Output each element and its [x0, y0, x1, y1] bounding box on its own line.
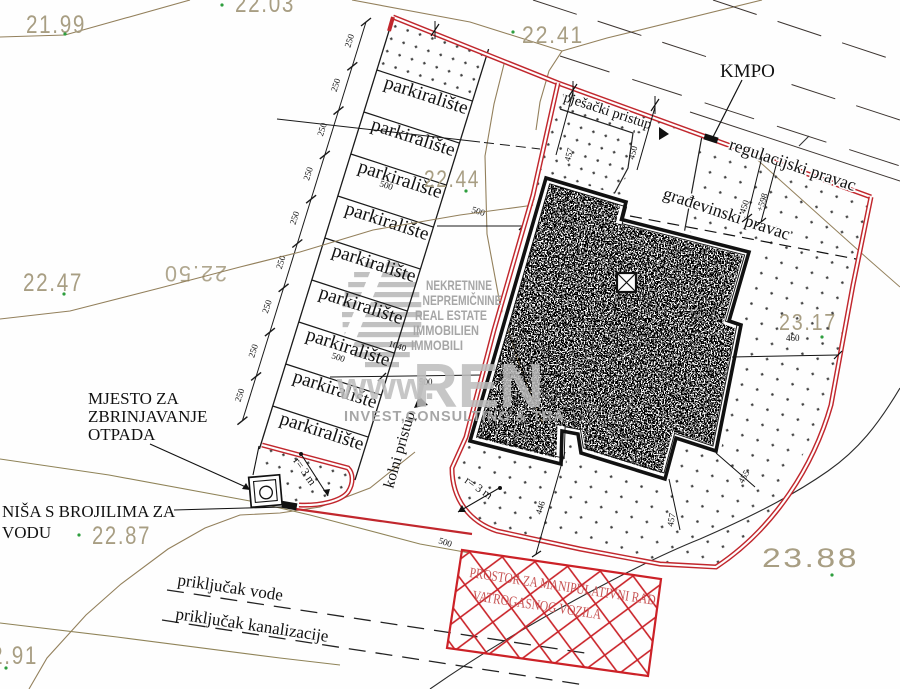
- svg-text:NEPREMIČNINE: NEPREMIČNINE: [423, 291, 502, 308]
- svg-text:21.99: 21.99: [26, 11, 86, 39]
- svg-text:INVEST,CONSULTING & TRA: INVEST,CONSULTING & TRA: [344, 409, 565, 425]
- svg-text:22.03: 22.03: [235, 0, 295, 18]
- svg-text:22.44: 22.44: [424, 166, 480, 193]
- svg-text:22.91: 22.91: [0, 642, 38, 670]
- svg-text:MJESTO ZA: MJESTO ZA: [88, 389, 180, 408]
- svg-text:VODU: VODU: [2, 523, 51, 542]
- svg-text:23.88: 23.88: [762, 543, 859, 573]
- svg-text:IMMOBILI: IMMOBILI: [411, 337, 463, 353]
- svg-text:NIŠA S BROJILIMA ZA: NIŠA S BROJILIMA ZA: [2, 502, 176, 521]
- svg-text:IMMOBILIEN: IMMOBILIEN: [413, 322, 479, 338]
- svg-text:KMPO: KMPO: [720, 61, 775, 82]
- svg-text:460: 460: [786, 333, 800, 343]
- svg-text:22.41: 22.41: [522, 22, 584, 49]
- svg-text:OTPADA: OTPADA: [88, 425, 156, 444]
- svg-text:22.47: 22.47: [23, 269, 83, 297]
- svg-text:REAL ESTATE: REAL ESTATE: [415, 307, 487, 323]
- svg-text:22.87: 22.87: [92, 522, 151, 550]
- svg-text:NEKRETNINE: NEKRETNINE: [426, 277, 492, 293]
- svg-text:ZBRINJAVANJE: ZBRINJAVANJE: [88, 407, 207, 426]
